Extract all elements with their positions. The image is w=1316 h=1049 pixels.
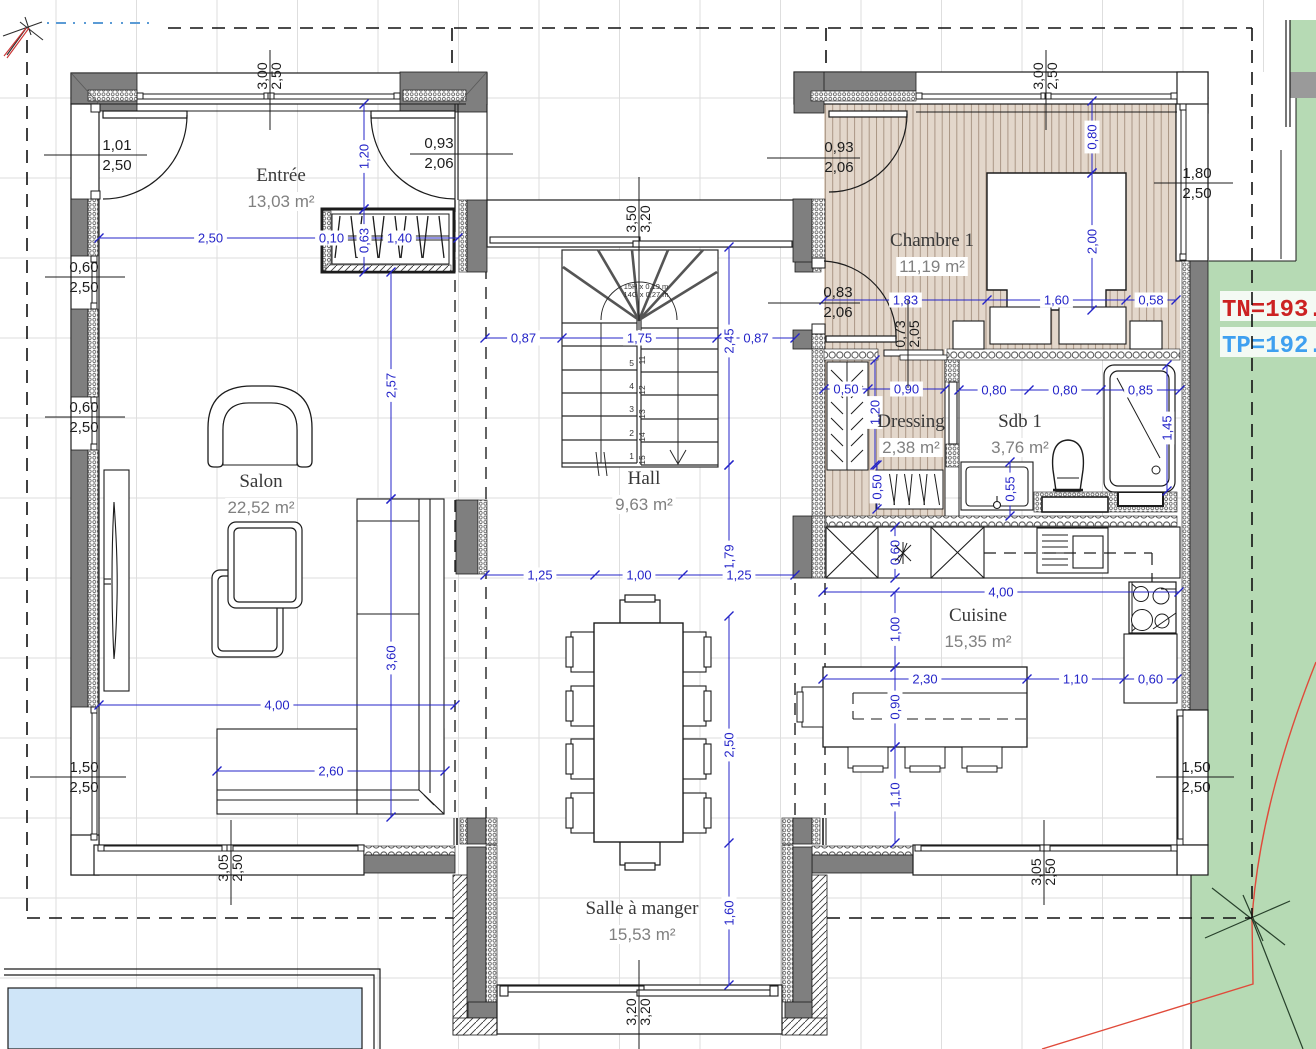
svg-text:1,10: 1,10 <box>1063 672 1088 687</box>
svg-text:13: 13 <box>637 409 647 419</box>
svg-text:4: 4 <box>629 381 634 391</box>
svg-text:1,00: 1,00 <box>888 617 903 642</box>
svg-text:1,40: 1,40 <box>387 231 412 246</box>
svg-text:0,60: 0,60 <box>69 399 98 416</box>
svg-text:2,06: 2,06 <box>824 159 853 176</box>
svg-text:5: 5 <box>629 358 634 368</box>
svg-text:4,00: 4,00 <box>264 698 289 713</box>
svg-text:TN=193.3: TN=193.3 <box>1222 297 1316 324</box>
svg-text:2,50: 2,50 <box>268 62 284 89</box>
svg-text:2,50: 2,50 <box>198 231 223 246</box>
svg-text:Entrée: Entrée <box>256 165 306 186</box>
svg-text:0,50: 0,50 <box>870 474 885 499</box>
svg-text:2,50: 2,50 <box>229 854 245 881</box>
svg-text:2,50: 2,50 <box>102 157 131 174</box>
svg-text:1,25: 1,25 <box>726 568 751 583</box>
svg-text:0,63: 0,63 <box>357 228 372 253</box>
svg-text:0,80: 0,80 <box>1085 124 1100 149</box>
svg-text:0,83: 0,83 <box>823 284 852 301</box>
svg-text:1,50: 1,50 <box>69 759 98 776</box>
svg-text:15,35 m²: 15,35 m² <box>944 632 1011 651</box>
svg-text:2,60: 2,60 <box>318 764 343 779</box>
svg-text:0,80: 0,80 <box>1052 383 1077 398</box>
svg-text:14: 14 <box>637 432 647 442</box>
svg-text:2,50: 2,50 <box>1042 858 1058 885</box>
svg-text:4,00: 4,00 <box>988 585 1013 600</box>
svg-text:12: 12 <box>637 385 647 395</box>
svg-text:0,93: 0,93 <box>824 139 853 156</box>
svg-text:2,00: 2,00 <box>1085 229 1100 254</box>
svg-text:3,20: 3,20 <box>637 205 653 232</box>
svg-text:11: 11 <box>637 355 647 364</box>
svg-text:1,83: 1,83 <box>893 293 918 308</box>
svg-text:1: 1 <box>629 451 634 461</box>
svg-text:15,53 m²: 15,53 m² <box>608 925 675 944</box>
svg-text:2,06: 2,06 <box>424 155 453 172</box>
svg-text:0,60: 0,60 <box>1138 672 1163 687</box>
svg-text:1,60: 1,60 <box>722 900 737 925</box>
svg-text:0,90: 0,90 <box>888 694 903 719</box>
svg-text:1,10: 1,10 <box>888 782 903 807</box>
svg-text:2,50: 2,50 <box>722 732 737 757</box>
svg-text:1,60: 1,60 <box>1044 293 1069 308</box>
svg-text:1,80: 1,80 <box>1182 165 1211 182</box>
svg-text:3,60: 3,60 <box>384 645 399 670</box>
svg-text:3: 3 <box>629 404 634 414</box>
svg-text:2,50: 2,50 <box>69 779 98 796</box>
svg-text:Dressing: Dressing <box>877 411 945 432</box>
svg-text:2,57: 2,57 <box>384 373 399 398</box>
svg-text:2,50: 2,50 <box>1182 185 1211 202</box>
svg-text:11,19 m²: 11,19 m² <box>899 257 965 276</box>
svg-text:Hall: Hall <box>628 468 661 489</box>
svg-text:2,45: 2,45 <box>722 328 737 353</box>
svg-text:0,10: 0,10 <box>319 231 344 246</box>
svg-text:2,38 m²: 2,38 m² <box>882 438 940 457</box>
svg-text:1,75: 1,75 <box>627 331 652 346</box>
svg-text:Salle à manger: Salle à manger <box>586 898 700 919</box>
svg-text:1,79: 1,79 <box>722 544 737 569</box>
svg-text:2,50: 2,50 <box>69 279 98 296</box>
svg-text:2,50: 2,50 <box>1044 62 1060 89</box>
svg-text:0,60: 0,60 <box>69 259 98 276</box>
svg-text:1,01: 1,01 <box>102 137 131 154</box>
svg-text:0,60: 0,60 <box>888 540 903 565</box>
svg-text:1,00: 1,00 <box>626 568 651 583</box>
svg-text:1,45: 1,45 <box>1160 415 1175 440</box>
svg-text:0,85: 0,85 <box>1128 383 1153 398</box>
svg-text:22,52 m²: 22,52 m² <box>227 498 294 517</box>
svg-text:2,50: 2,50 <box>69 419 98 436</box>
svg-text:14G x 0,27 m: 14G x 0,27 m <box>623 290 668 299</box>
svg-text:0,80: 0,80 <box>981 383 1006 398</box>
svg-text:0,50: 0,50 <box>833 382 858 397</box>
svg-text:2,05: 2,05 <box>906 320 922 347</box>
svg-text:2,30: 2,30 <box>912 672 937 687</box>
svg-text:1,20: 1,20 <box>357 144 372 169</box>
svg-text:1,25: 1,25 <box>527 568 552 583</box>
svg-text:0,87: 0,87 <box>511 331 536 346</box>
svg-text:Cuisine: Cuisine <box>949 605 1007 626</box>
svg-text:2: 2 <box>629 428 634 438</box>
svg-text:2,06: 2,06 <box>823 304 852 321</box>
svg-text:15: 15 <box>637 455 647 465</box>
svg-text:Sdb 1: Sdb 1 <box>998 411 1042 432</box>
svg-text:0,55: 0,55 <box>1003 476 1018 501</box>
svg-text:3,76 m²: 3,76 m² <box>991 438 1049 457</box>
svg-text:3,20: 3,20 <box>637 998 653 1025</box>
svg-text:13,03 m²: 13,03 m² <box>247 192 314 211</box>
svg-text:Salon: Salon <box>239 471 283 492</box>
svg-text:1,50: 1,50 <box>1181 759 1210 776</box>
svg-text:0,58: 0,58 <box>1138 293 1163 308</box>
svg-text:0,87: 0,87 <box>743 331 768 346</box>
svg-text:TP=192.6: TP=192.6 <box>1222 333 1316 360</box>
svg-text:Chambre 1: Chambre 1 <box>890 230 974 251</box>
svg-text:2,50: 2,50 <box>1181 779 1210 796</box>
svg-text:9,63 m²: 9,63 m² <box>615 495 673 514</box>
svg-text:0,93: 0,93 <box>424 135 453 152</box>
svg-text:0,90: 0,90 <box>894 382 919 397</box>
